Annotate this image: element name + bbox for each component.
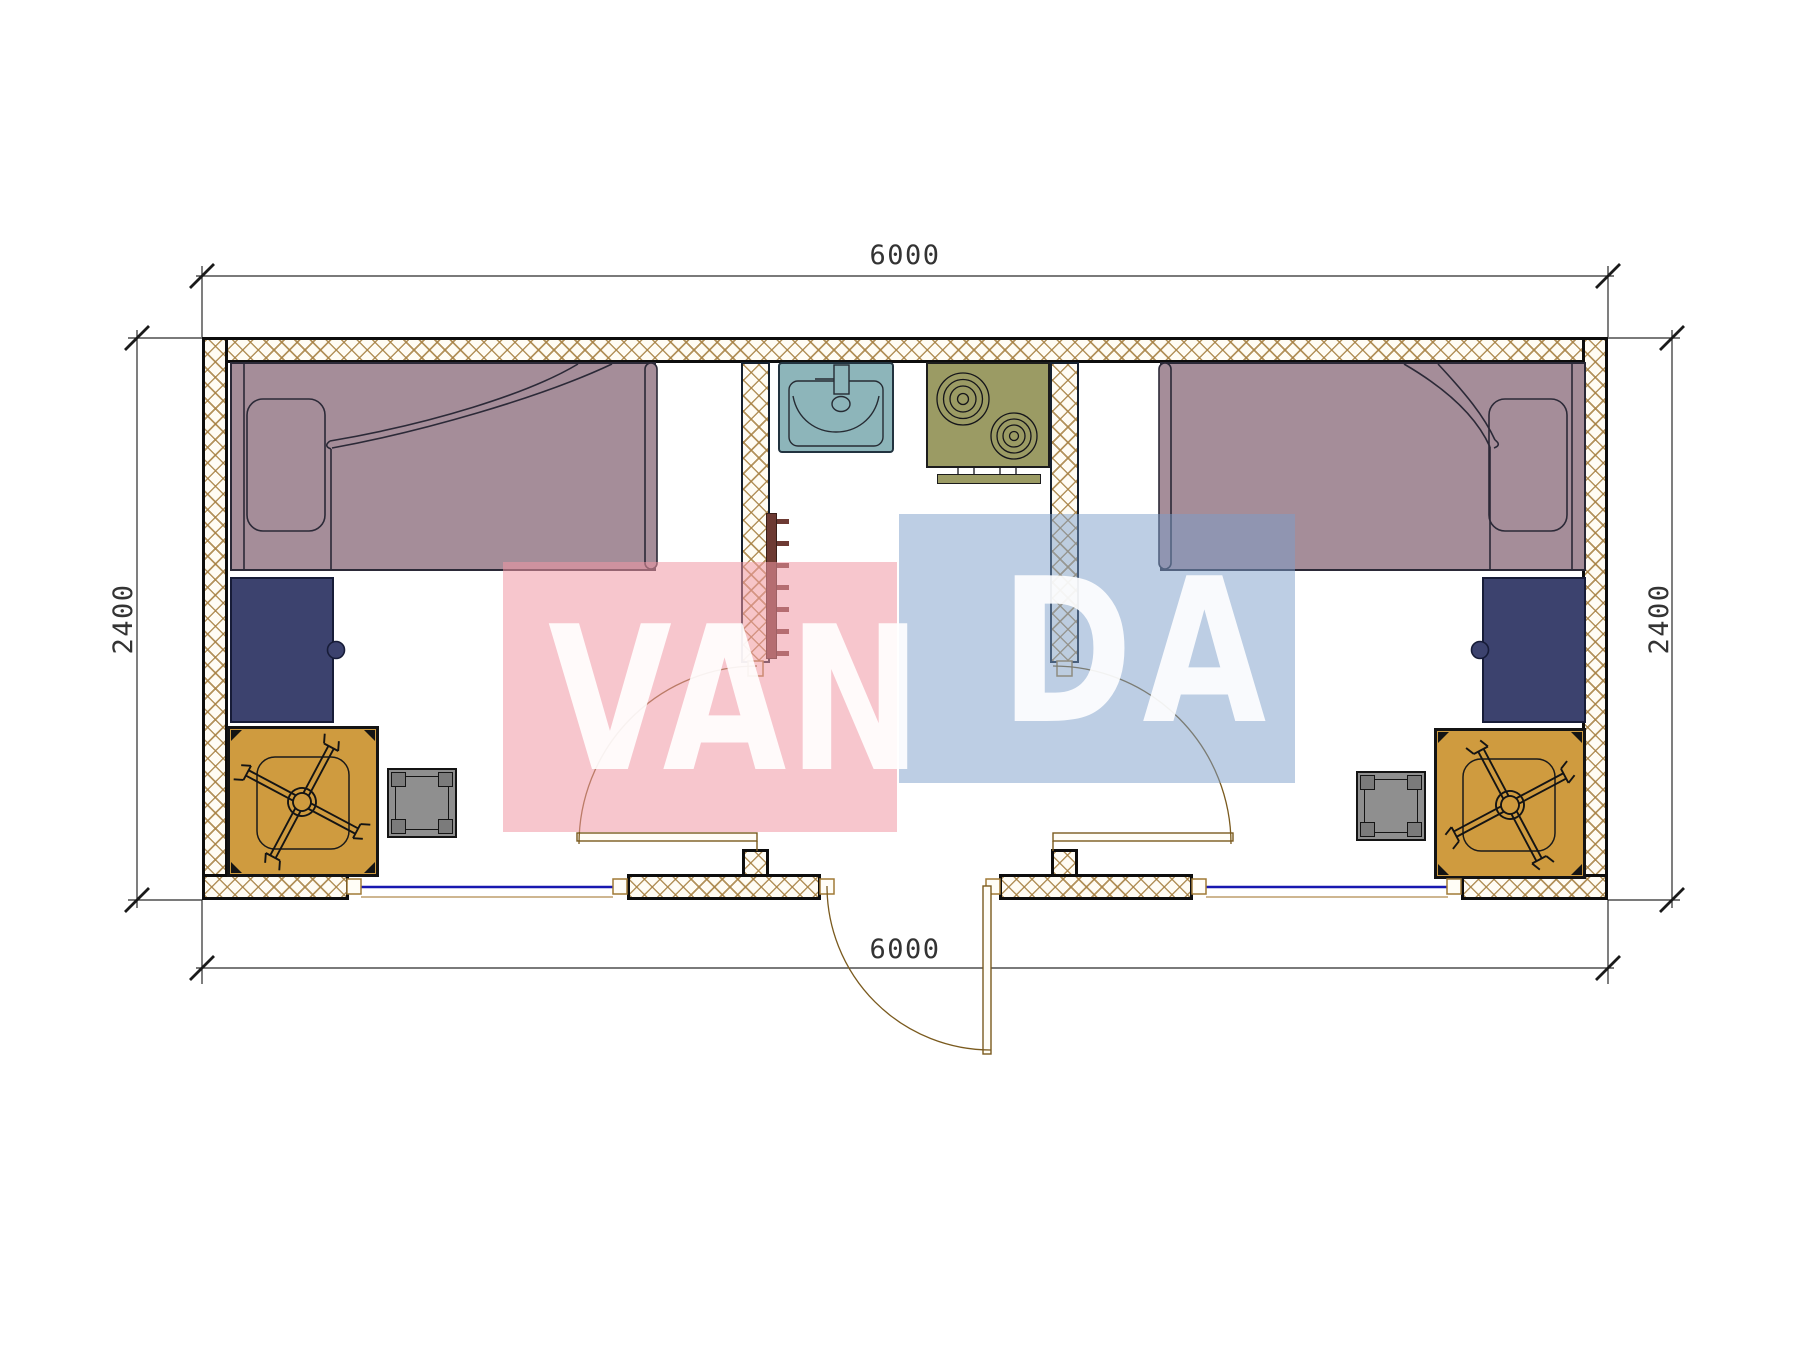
footboard-left	[645, 363, 657, 569]
watermark-text-van: VAN	[548, 601, 924, 801]
stove-burners	[937, 373, 1037, 474]
pillow-left	[247, 399, 325, 531]
dimension-label-bottom: 6000	[845, 934, 965, 966]
window-lines	[361, 887, 1448, 897]
pillow-right	[1489, 399, 1567, 531]
watermark-text-da: DA	[1000, 553, 1276, 753]
dimension-label-top: 6000	[845, 240, 965, 272]
chair-seat-left	[257, 757, 349, 849]
dimension-label-right: 2400	[1644, 559, 1676, 679]
floor-plan-canvas: 6000 6000 2400 2400 VAN DA	[0, 0, 1800, 1350]
chair-seat-right	[1463, 759, 1555, 851]
blanket-fold-right	[1404, 364, 1498, 570]
dimension-label-left: 2400	[108, 559, 140, 679]
sink-details	[789, 365, 883, 446]
blanket-fold-left	[327, 364, 612, 570]
